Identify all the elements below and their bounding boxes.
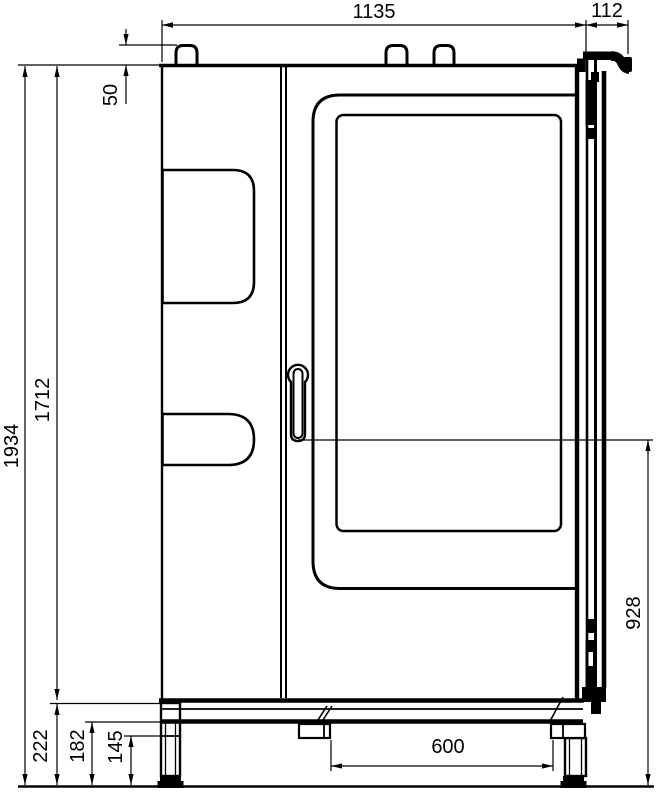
dim-plinth-label: 222 — [30, 729, 52, 762]
door-handle-slot — [294, 369, 303, 438]
door-divider — [281, 66, 286, 698]
top-handle-hook — [577, 52, 632, 73]
door-window-inner — [337, 115, 562, 531]
hinge-bottom-bracket — [582, 687, 606, 714]
dim-foot-145: 145 — [105, 730, 160, 785]
base-frame — [162, 697, 585, 738]
dim-overall-height-1934: 1934 — [1, 65, 160, 785]
door-window-outer — [313, 95, 579, 589]
dim-roof-fitting-label: 50 — [100, 84, 122, 106]
hinge-block — [586, 80, 596, 125]
door-handle — [288, 365, 308, 441]
left-leg — [161, 703, 180, 776]
lower-recess — [163, 414, 255, 465]
dim-body-height-1712: 1712 — [32, 66, 160, 704]
legs-and-feet — [158, 703, 587, 788]
dim-handle-height-label: 928 — [623, 596, 645, 629]
dim-frame-label: 182 — [67, 729, 89, 762]
dim-width-label: 1135 — [352, 1, 395, 23]
dim-foot-label: 145 — [105, 730, 127, 763]
side-panel-recesses — [163, 170, 255, 465]
dim-plinth-222: 222 — [30, 704, 60, 785]
dim-body-height-label: 1712 — [32, 378, 54, 423]
hinge-block — [591, 72, 599, 82]
dim-stand-spacing-label: 600 — [431, 736, 464, 758]
roof-fittings — [176, 46, 454, 67]
hinge-block — [586, 128, 594, 139]
dim-width-1135: 1135 — [162, 1, 586, 62]
technical-drawing: 1135 112 50 1934 — [0, 0, 656, 792]
dimension-annotations: 1135 112 50 1934 — [1, 0, 653, 785]
upper-recess — [163, 170, 255, 303]
oven-outline — [159, 64, 584, 702]
dim-overall-height-label: 1934 — [1, 424, 23, 469]
right-leg — [565, 738, 586, 776]
dim-stand-spacing-600: 600 — [331, 736, 553, 771]
dim-handle-height-928: 928 — [298, 440, 653, 785]
door-window — [313, 95, 579, 589]
roof-fitting — [386, 46, 407, 67]
right-mount-bracket — [551, 724, 585, 738]
hinge-block — [586, 619, 595, 633]
roof-fitting — [176, 46, 197, 67]
hinge-assembly — [582, 52, 606, 714]
dim-handle-offset-112: 112 — [586, 0, 628, 54]
roof-fitting — [434, 46, 454, 67]
dim-handle-offset-label: 112 — [591, 0, 623, 22]
dim-roof-fitting-50: 50 — [100, 29, 177, 106]
left-mount-bracket — [299, 724, 330, 738]
